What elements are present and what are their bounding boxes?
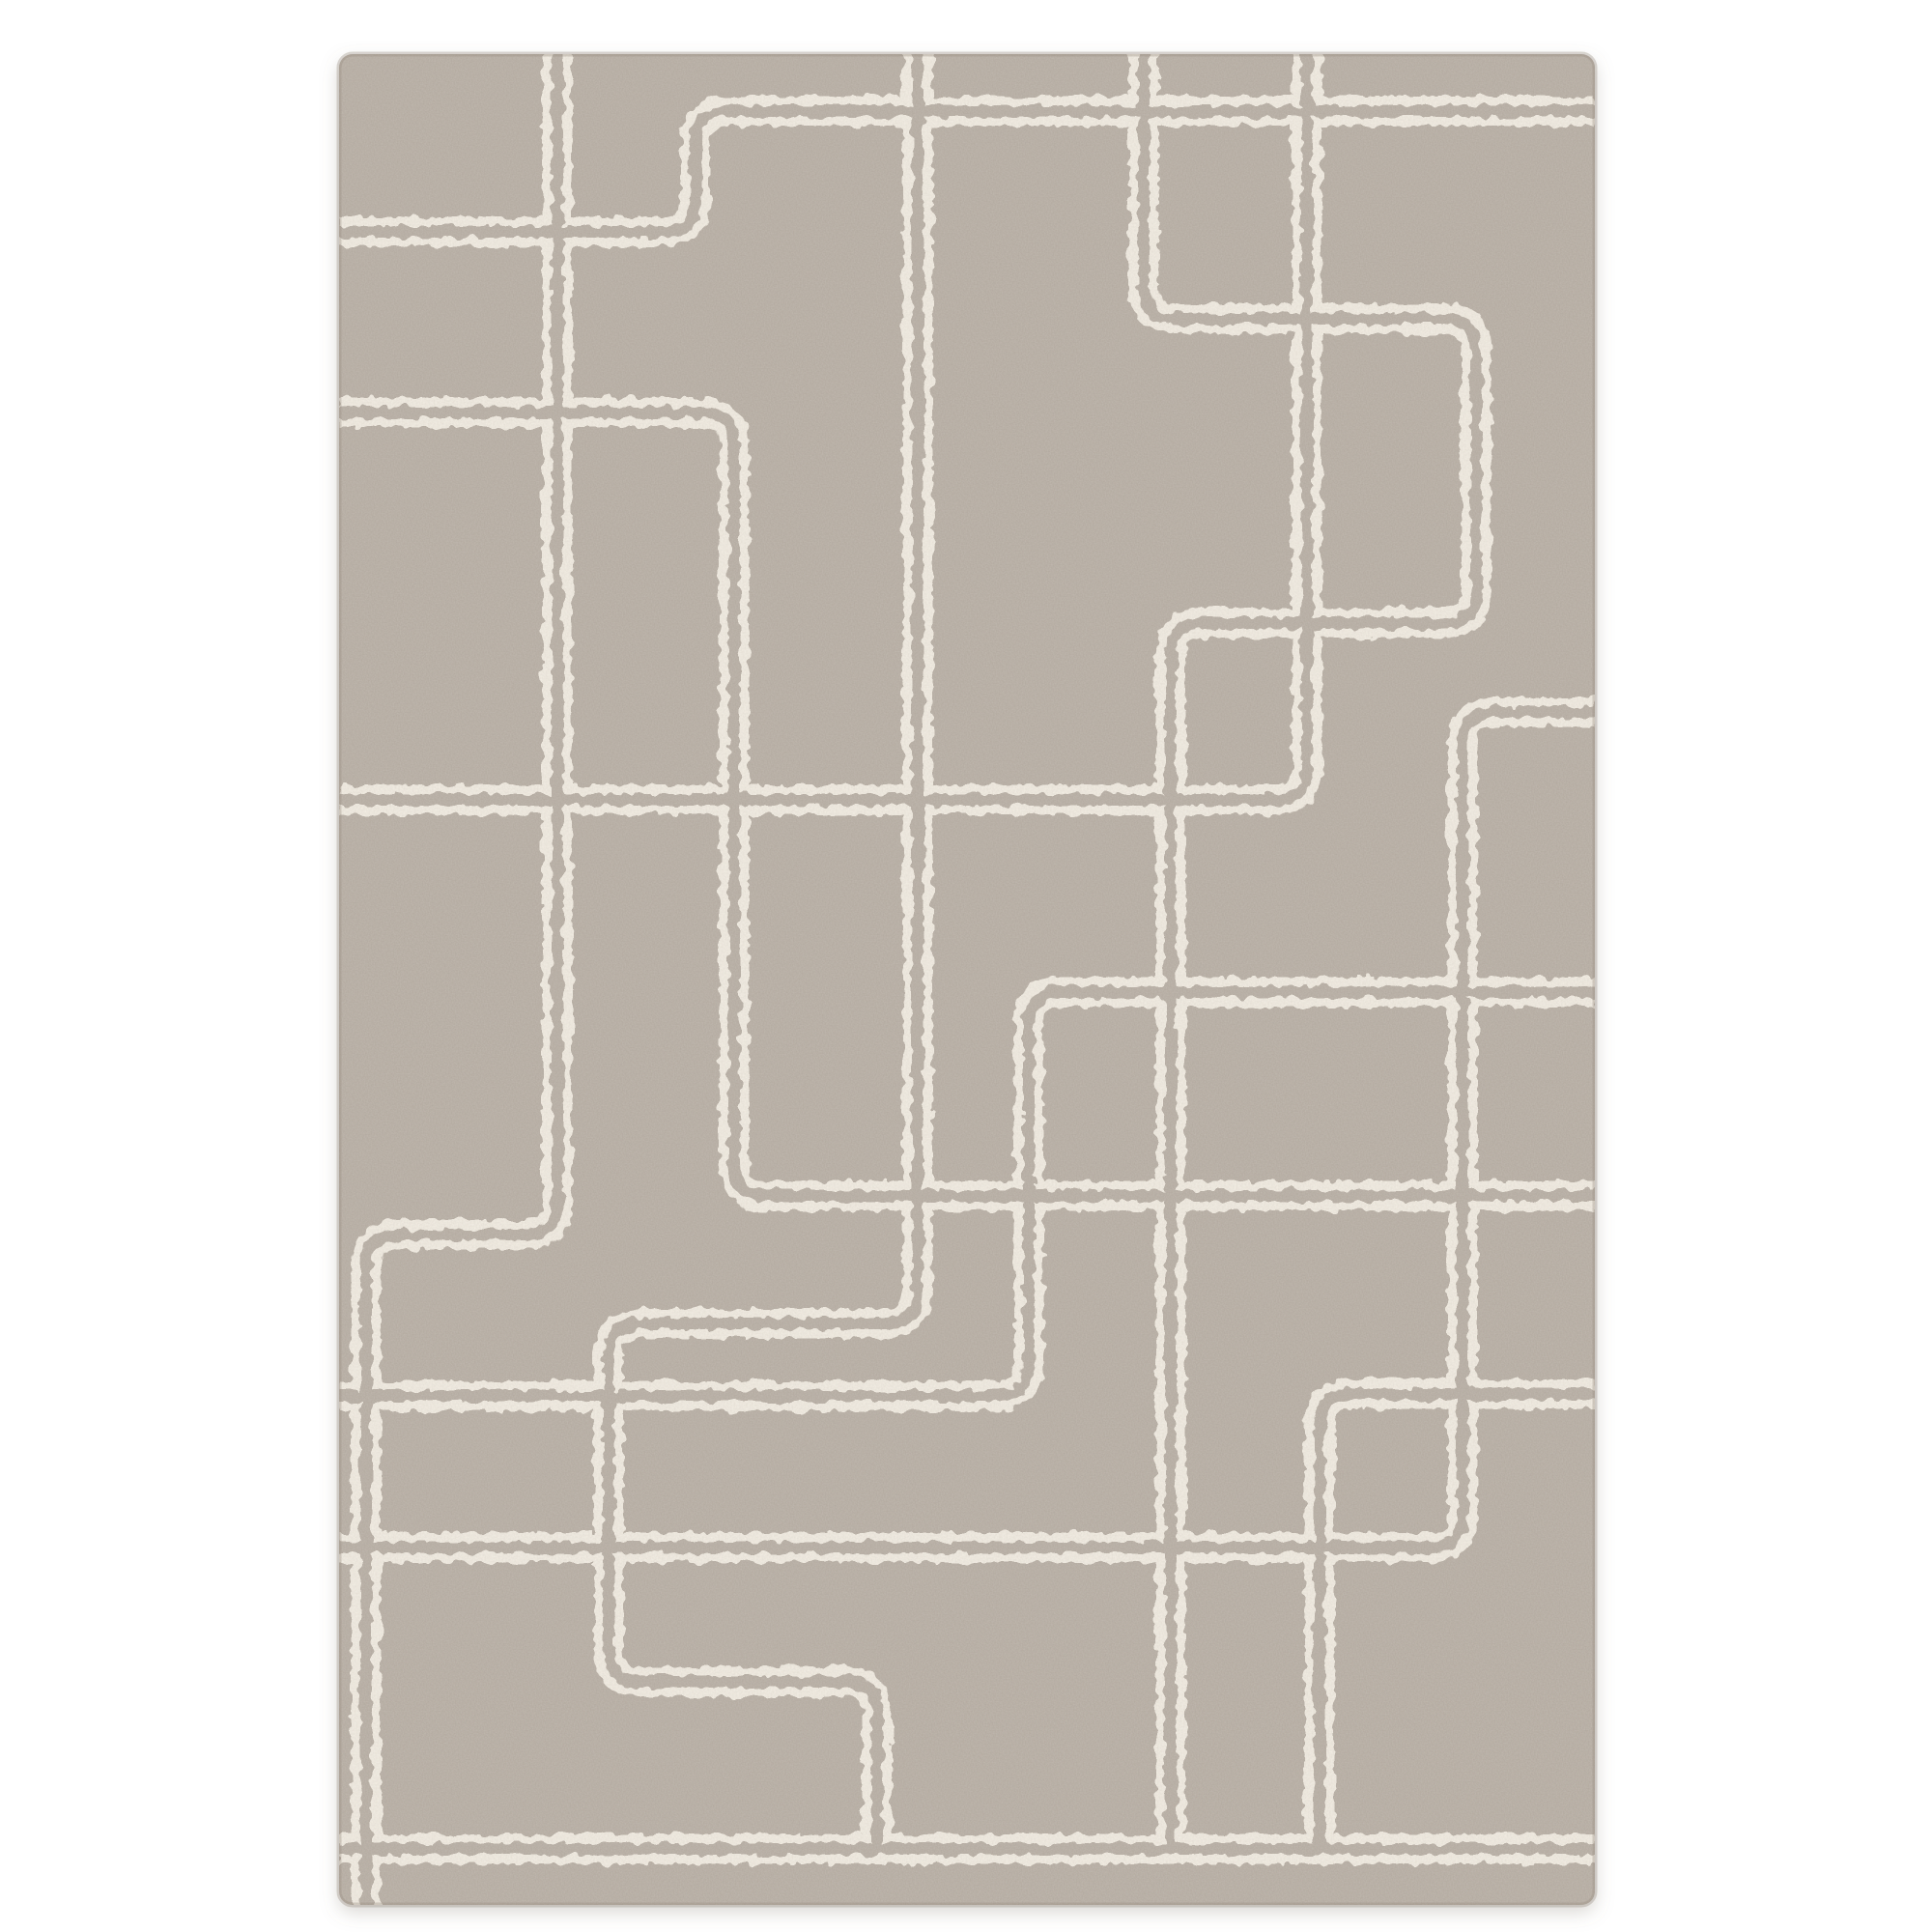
photo-background — [0, 0, 1932, 1932]
rug-product-photo — [0, 0, 1932, 1932]
rug-pattern-clip — [339, 52, 1595, 1905]
rug-texture-light — [339, 54, 1595, 1905]
rug-image — [339, 52, 1595, 1905]
